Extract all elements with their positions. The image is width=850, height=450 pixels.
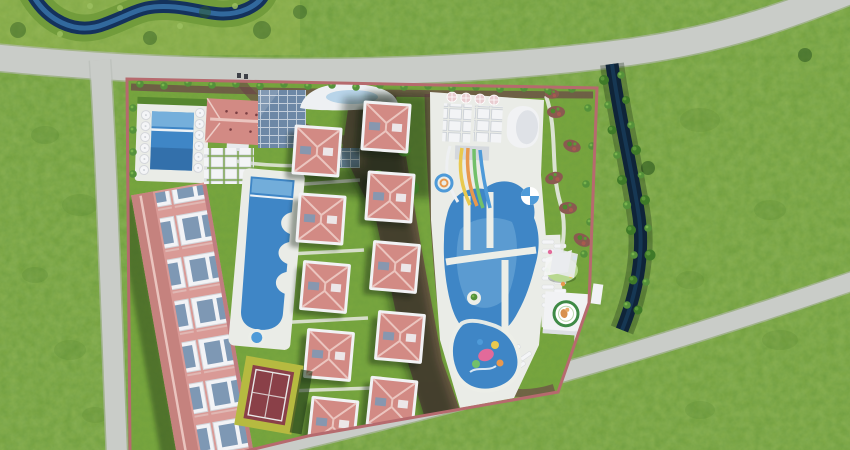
sun-terraces [442,103,472,142]
kids-pool [453,323,518,389]
resort-aerial-scene [0,0,850,450]
aerial-render [0,0,850,450]
striped-umbrella [521,187,539,205]
villa [358,170,416,229]
villa [292,259,351,318]
resort-grounds [115,70,605,450]
villa [367,309,426,368]
dome-building [506,105,540,149]
villa [362,239,421,298]
villa [289,192,347,251]
villa [354,100,412,159]
tennis-court [234,356,313,437]
north-pool [135,97,210,183]
jacuzzi [249,330,264,345]
villa [285,124,343,183]
kids-club-logo [553,301,579,327]
